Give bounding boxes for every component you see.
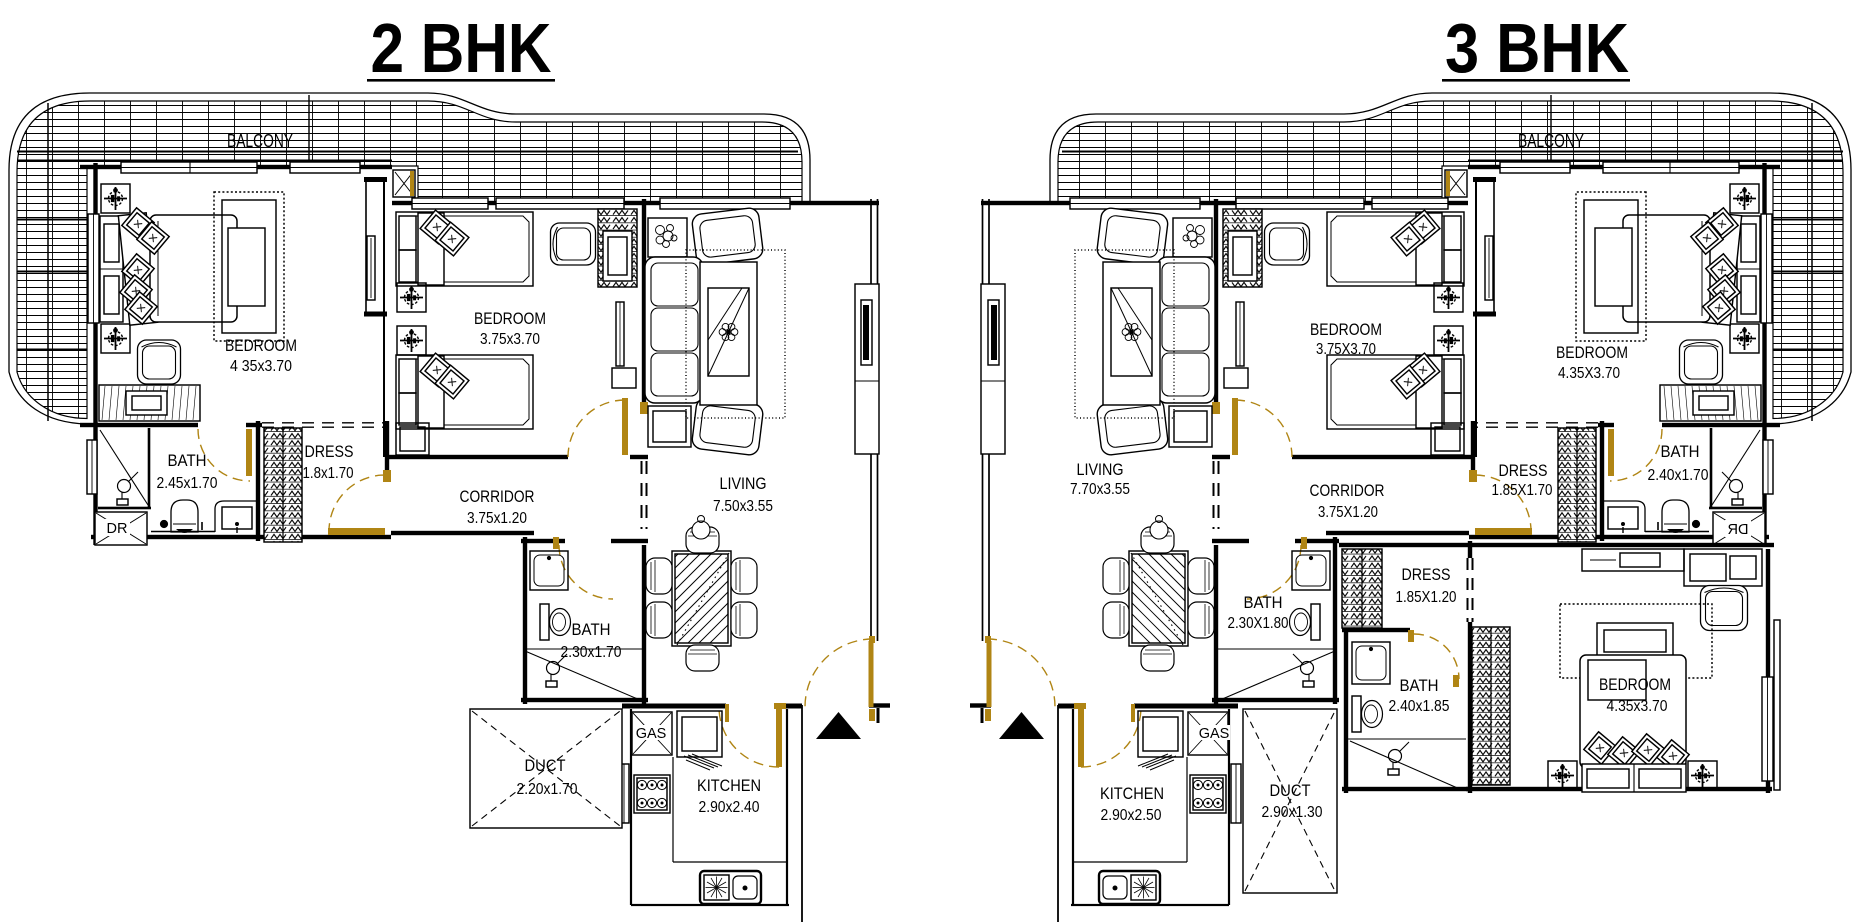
svg-text:BATH: BATH xyxy=(168,451,207,470)
svg-text:DRESS: DRESS xyxy=(1499,461,1548,480)
svg-text:3 BHK: 3 BHK xyxy=(1445,9,1629,87)
svg-text:DRESS: DRESS xyxy=(1402,565,1451,584)
svg-text:2.90x1.30: 2.90x1.30 xyxy=(1262,804,1323,821)
svg-text:DRESS: DRESS xyxy=(305,442,354,461)
svg-text:BATH: BATH xyxy=(1244,593,1283,612)
svg-text:2 BHK: 2 BHK xyxy=(371,9,552,87)
svg-text:BALCONY: BALCONY xyxy=(1518,131,1584,151)
svg-text:1.85X1.70: 1.85X1.70 xyxy=(1492,482,1553,499)
svg-text:7.50x3.55: 7.50x3.55 xyxy=(713,498,773,515)
svg-text:KITCHEN: KITCHEN xyxy=(697,776,761,795)
svg-text:BEDROOM: BEDROOM xyxy=(225,336,297,355)
svg-text:LIVING: LIVING xyxy=(1077,460,1124,479)
svg-text:BEDROOM: BEDROOM xyxy=(474,309,546,328)
svg-text:GAS: GAS xyxy=(1199,726,1230,742)
svg-text:3.75x1.20: 3.75x1.20 xyxy=(467,510,527,527)
svg-text:1.8x1.70: 1.8x1.70 xyxy=(303,465,354,482)
svg-text:DUCT: DUCT xyxy=(1270,781,1311,800)
svg-text:2.30X1.80: 2.30X1.80 xyxy=(1228,615,1289,632)
svg-text:4.35X3.70: 4.35X3.70 xyxy=(1558,365,1620,382)
svg-text:7.70x3.55: 7.70x3.55 xyxy=(1070,481,1130,498)
svg-text:BATH: BATH xyxy=(1400,676,1439,695)
svg-text:3.75X3.70: 3.75X3.70 xyxy=(1316,341,1376,358)
svg-text:2.30x1.70: 2.30x1.70 xyxy=(561,644,622,661)
svg-text:2.40x1.70: 2.40x1.70 xyxy=(1648,467,1709,484)
svg-text:4 35x3.70: 4 35x3.70 xyxy=(230,358,292,375)
svg-text:2.90x2.50: 2.90x2.50 xyxy=(1101,807,1162,824)
svg-text:DR: DR xyxy=(107,521,128,537)
svg-text:DUCT: DUCT xyxy=(525,756,566,775)
svg-text:2.45x1.70: 2.45x1.70 xyxy=(157,475,218,492)
svg-text:4.35x3.70: 4.35x3.70 xyxy=(1607,698,1668,715)
svg-text:BEDROOM: BEDROOM xyxy=(1556,343,1628,362)
svg-text:GAS: GAS xyxy=(636,726,667,742)
svg-text:2.20x1.70: 2.20x1.70 xyxy=(517,781,578,798)
svg-text:KITCHEN: KITCHEN xyxy=(1100,784,1164,803)
svg-text:3.75X1.20: 3.75X1.20 xyxy=(1318,504,1378,521)
svg-text:LIVING: LIVING xyxy=(720,474,767,493)
svg-text:BEDROOM: BEDROOM xyxy=(1599,675,1671,694)
svg-text:1.85X1.20: 1.85X1.20 xyxy=(1396,589,1457,606)
svg-text:BALCONY: BALCONY xyxy=(227,131,293,151)
svg-text:DR: DR xyxy=(1728,522,1749,538)
svg-text:CORRIDOR: CORRIDOR xyxy=(1310,481,1385,500)
svg-text:3.75x3.70: 3.75x3.70 xyxy=(480,331,540,348)
svg-text:CORRIDOR: CORRIDOR xyxy=(460,487,535,506)
svg-text:BATH: BATH xyxy=(1661,442,1700,461)
svg-text:2.90x2.40: 2.90x2.40 xyxy=(699,799,760,816)
svg-text:BATH: BATH xyxy=(572,620,611,639)
svg-text:2.40x1.85: 2.40x1.85 xyxy=(1389,698,1450,715)
svg-text:BEDROOM: BEDROOM xyxy=(1310,320,1382,339)
